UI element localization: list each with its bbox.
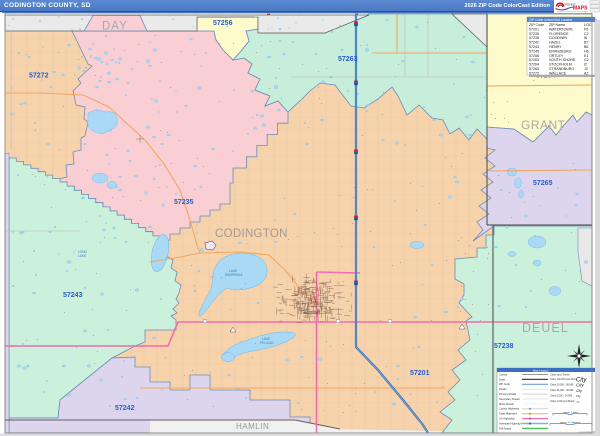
- svg-text:57242: 57242: [115, 405, 135, 412]
- svg-text:State Highways: State Highways: [499, 412, 518, 416]
- svg-text:HAMLIN: HAMLIN: [236, 422, 269, 431]
- svg-text:STRANDBURG: STRANDBURG: [549, 67, 574, 71]
- svg-text:LAKE: LAKE: [78, 254, 86, 258]
- svg-text:ZIP Code Index/Grid Locator: ZIP Code Index/Grid Locator: [529, 18, 573, 22]
- svg-text:Roads: Roads: [499, 387, 507, 391]
- svg-text:Cities 1,000 and Below: Cities 1,000 and Below: [550, 400, 575, 403]
- svg-text:approx. 11 kilometers: approx. 11 kilometers: [560, 421, 582, 424]
- svg-text:57263: 57263: [338, 56, 358, 63]
- svg-text:Secondary Roads: Secondary Roads: [499, 397, 520, 401]
- svg-text:57243: 57243: [529, 45, 539, 49]
- svg-text:57235: 57235: [529, 32, 539, 36]
- svg-text:57272: 57272: [529, 71, 539, 75]
- svg-text:City: City: [576, 394, 581, 398]
- svg-text:Primary Roads: Primary Roads: [499, 392, 517, 396]
- svg-text:Cities 50,000 - 99,999: Cities 50,000 - 99,999: [550, 384, 574, 387]
- svg-text:B6: B6: [584, 45, 588, 49]
- svg-text:57265: 57265: [533, 180, 553, 187]
- svg-text:57238: 57238: [494, 343, 514, 350]
- svg-text:Interstate Highways: Interstate Highways: [499, 421, 522, 425]
- svg-text:57238: 57238: [529, 36, 539, 40]
- svg-text:KRANZBURG: KRANZBURG: [549, 49, 572, 53]
- svg-text:LOC: LOC: [584, 23, 592, 27]
- svg-text:US Highways: US Highways: [499, 417, 515, 421]
- svg-text:J3: J3: [584, 67, 588, 71]
- svg-text:57245: 57245: [529, 49, 539, 53]
- svg-text:approx. 7 miles: approx. 7 miles: [563, 411, 579, 414]
- svg-text:57201: 57201: [410, 370, 430, 377]
- svg-text:Cities 5,000 - 24,999: Cities 5,000 - 24,999: [550, 395, 573, 398]
- svg-text:Map Legend: Map Legend: [533, 368, 549, 372]
- svg-text:ZIP Code: ZIP Code: [529, 23, 544, 27]
- svg-text:GOODWIN: GOODWIN: [549, 36, 567, 40]
- svg-text:HAZEL: HAZEL: [549, 41, 561, 45]
- svg-text:Minor Roads: Minor Roads: [499, 402, 514, 406]
- svg-text:Toll Roads: Toll Roads: [499, 426, 512, 430]
- svg-text:57272: 57272: [29, 73, 49, 80]
- svg-text:57235: 57235: [174, 199, 194, 206]
- svg-text:County Highways: County Highways: [499, 407, 520, 411]
- svg-text:H6: H6: [584, 49, 589, 53]
- svg-text:County: County: [499, 372, 508, 376]
- svg-text:Cities and Towns: Cities and Towns: [550, 373, 570, 377]
- svg-text:FLORENCE: FLORENCE: [549, 32, 569, 36]
- svg-text:E1: E1: [584, 54, 588, 58]
- svg-text:PELICAN: PELICAN: [260, 341, 274, 345]
- svg-text:57265: 57265: [529, 67, 539, 71]
- svg-text:STOCKHOLM: STOCKHOLM: [549, 63, 572, 67]
- svg-text:CODINGTON: CODINGTON: [215, 228, 288, 240]
- svg-text:A2: A2: [584, 71, 588, 75]
- svg-text:WALLACE: WALLACE: [549, 71, 567, 75]
- svg-text:KAMPESKA: KAMPESKA: [225, 273, 243, 277]
- svg-text:I2: I2: [584, 63, 587, 67]
- svg-text:SOUTH SHORE: SOUTH SHORE: [549, 58, 576, 62]
- svg-text:State: State: [499, 377, 506, 381]
- svg-text:B7: B7: [584, 41, 588, 45]
- svg-text:Watertown: Watertown: [303, 311, 318, 315]
- svg-text:57243: 57243: [63, 292, 83, 299]
- svg-text:C2: C2: [584, 32, 589, 36]
- svg-text:ZIP Name: ZIP Name: [549, 23, 565, 27]
- svg-text:57201: 57201: [529, 27, 539, 31]
- svg-text:F5: F5: [584, 27, 588, 31]
- svg-text:DEUEL: DEUEL: [522, 321, 569, 335]
- svg-text:57256: 57256: [529, 54, 539, 58]
- svg-text:57256: 57256: [213, 20, 233, 27]
- svg-text:HENRY: HENRY: [549, 45, 562, 49]
- svg-text:City: City: [576, 383, 584, 388]
- svg-text:DAY: DAY: [102, 21, 128, 33]
- svg-text:ZIP Code: ZIP Code: [499, 382, 510, 386]
- svg-text:Cities 25,000 - 49,999: Cities 25,000 - 49,999: [550, 389, 574, 392]
- svg-text:ORTLEY: ORTLEY: [549, 54, 564, 58]
- svg-text:57264: 57264: [529, 63, 539, 67]
- svg-text:MAPS: MAPS: [573, 6, 588, 12]
- svg-text:I6: I6: [584, 36, 587, 40]
- svg-text:57242: 57242: [529, 41, 539, 45]
- svg-text:GRANT: GRANT: [521, 118, 566, 132]
- svg-text:G2: G2: [584, 58, 589, 62]
- svg-text:57263: 57263: [529, 58, 539, 62]
- svg-text:Cities 100,000 and Above: Cities 100,000 and Above: [550, 378, 578, 381]
- svg-text:WATERTOWN: WATERTOWN: [549, 27, 573, 31]
- svg-text:City: City: [576, 389, 582, 393]
